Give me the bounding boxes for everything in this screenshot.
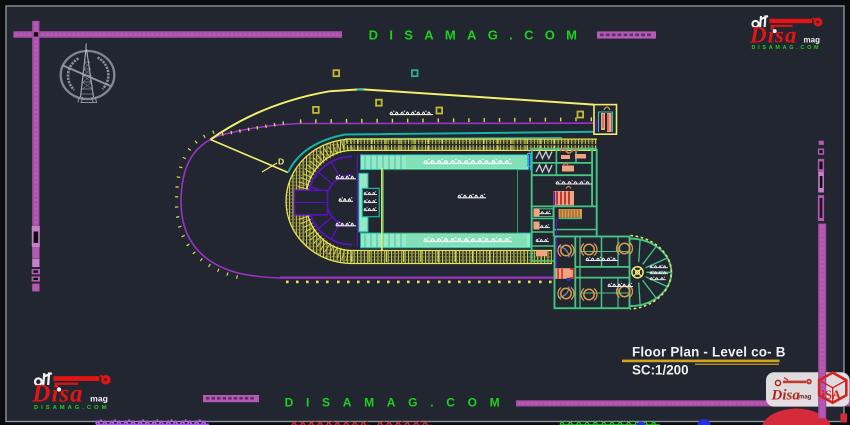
svg-text:DISAMAG.COM: DISAMAG.COM [369, 28, 589, 43]
svg-text:Disa: Disa [749, 23, 797, 48]
svg-text:Disa: Disa [771, 388, 801, 404]
svg-text:DISAMAG.COM: DISAMAG.COM [34, 405, 109, 411]
svg-text:mag: mag [90, 394, 108, 404]
svg-text:SC:1/200: SC:1/200 [632, 363, 689, 378]
svg-text:DISAMAG.COM: DISAMAG.COM [285, 396, 513, 410]
svg-text:Disa: Disa [31, 381, 83, 408]
svg-text:mag: mag [804, 36, 821, 45]
svg-text:DISAMAG.COM: DISAMAG.COM [752, 45, 822, 51]
svg-text:D: D [278, 157, 284, 167]
svg-text:iSA: iSA [822, 388, 841, 402]
svg-text:Floor Plan - Level co- B: Floor Plan - Level co- B [632, 345, 786, 360]
svg-text:mag: mag [799, 395, 812, 401]
